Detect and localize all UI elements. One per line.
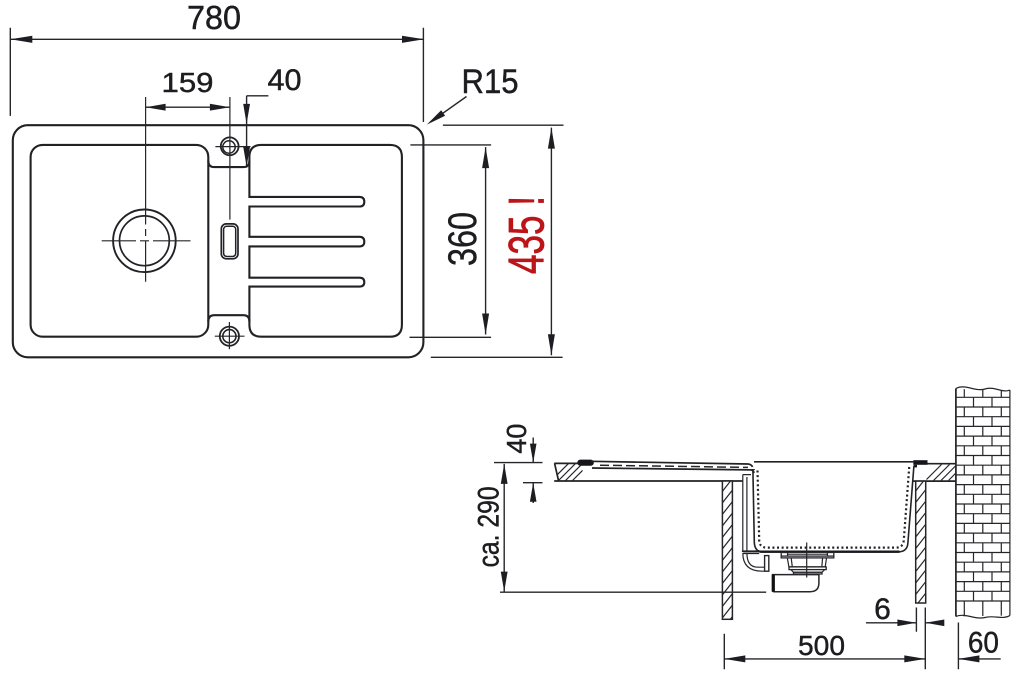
svg-text:40: 40 [268, 64, 302, 97]
svg-text:6: 6 [874, 593, 891, 626]
svg-text:R15: R15 [462, 63, 519, 101]
svg-text:ca. 290: ca. 290 [473, 486, 506, 567]
svg-text:60: 60 [968, 627, 999, 660]
svg-text:500: 500 [798, 630, 845, 661]
svg-text:159: 159 [162, 67, 214, 98]
svg-text:435 !: 435 ! [498, 196, 554, 274]
svg-text:360: 360 [441, 212, 485, 266]
svg-text:40: 40 [501, 424, 532, 454]
svg-text:780: 780 [187, 0, 241, 36]
